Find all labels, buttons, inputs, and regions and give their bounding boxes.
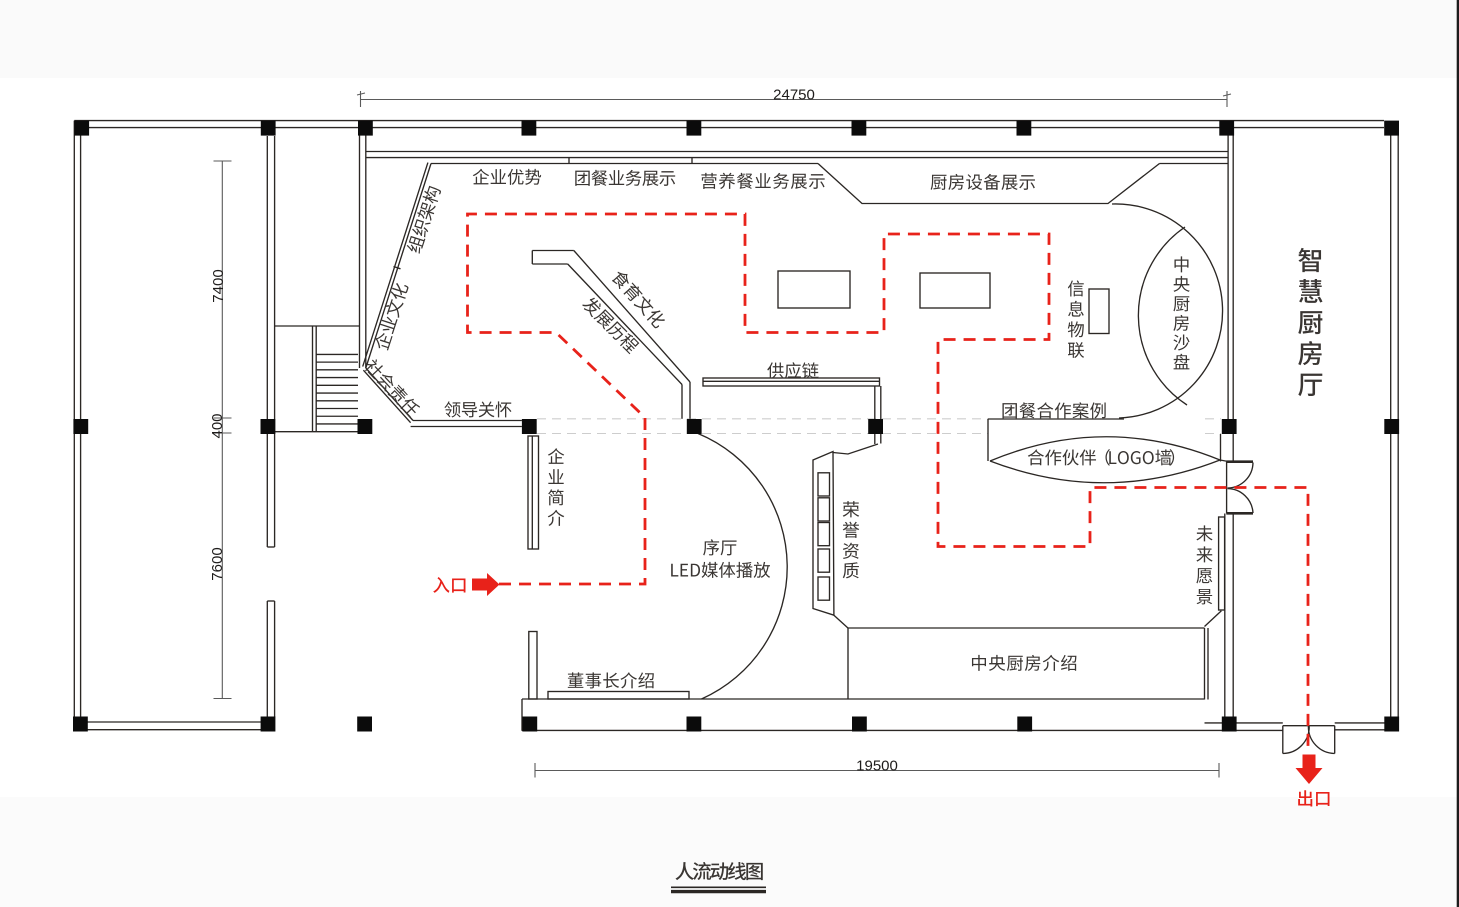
svg-text:400: 400: [209, 413, 226, 438]
svg-text:7600: 7600: [209, 547, 226, 580]
svg-text:19500: 19500: [856, 758, 898, 775]
svg-text:24750: 24750: [773, 87, 815, 104]
svg-text:7400: 7400: [210, 269, 227, 302]
